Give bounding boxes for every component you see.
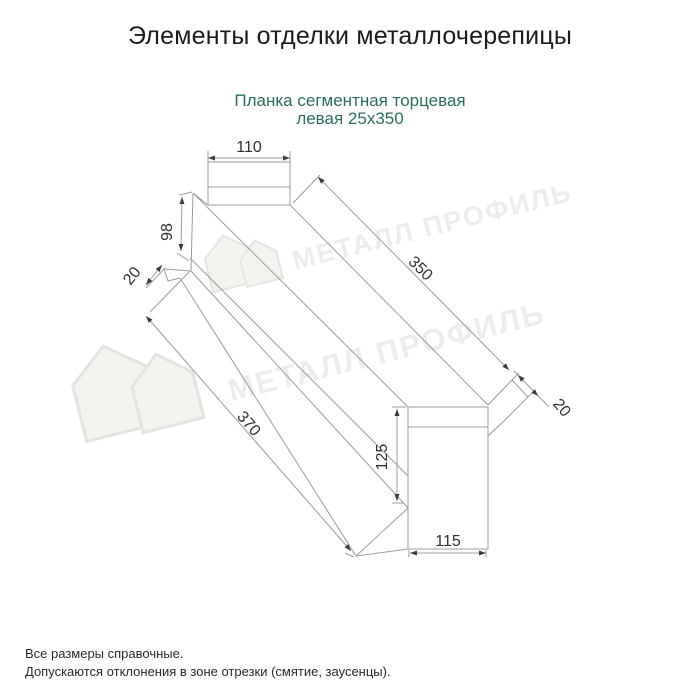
watermark-text: МЕТАЛЛ ПРОФИЛЬ [224, 295, 549, 408]
metall-profil-logo-icon [65, 327, 204, 447]
dimension-right-fold: 20 [512, 371, 574, 420]
footer-note-1: Все размеры справочные. [25, 645, 391, 663]
dim-label-370: 370 [233, 408, 263, 439]
dim-label-115: 115 [435, 533, 461, 550]
bottom-end-cap [408, 407, 488, 549]
subtitle-line-1: Планка сегментная торцевая [0, 92, 700, 110]
watermark-row-1: МЕТАЛЛ ПРОФИЛЬ [200, 151, 575, 296]
dimension-left-fold: 20 [120, 264, 190, 312]
dim-label-20-left: 20 [120, 264, 144, 289]
page-title: Элементы отделки металлочерепицы [0, 22, 700, 51]
dim-label-98: 98 [159, 223, 176, 241]
footer-notes: Все размеры справочные. Допускаются откл… [25, 645, 391, 681]
dim-label-20-right: 20 [549, 396, 574, 421]
dimension-top-width: 110 [208, 139, 290, 163]
metall-profil-logo-icon [200, 224, 283, 295]
dimension-bottom-width: 115 [409, 533, 486, 557]
dim-label-350: 350 [405, 253, 436, 284]
subtitle-line-2: левая 25х350 [0, 110, 700, 128]
right-fold-flap [488, 380, 528, 436]
dim-label-110: 110 [236, 139, 262, 156]
dim-label-125: 125 [374, 444, 391, 471]
footer-note-2: Допускаются отклонения в зоне отрезки (с… [25, 663, 391, 681]
top-end-cap [208, 162, 290, 205]
drawing-subtitle: Планка сегментная торцевая левая 25х350 [0, 92, 700, 128]
dimension-left-face: 98 [159, 192, 192, 261]
